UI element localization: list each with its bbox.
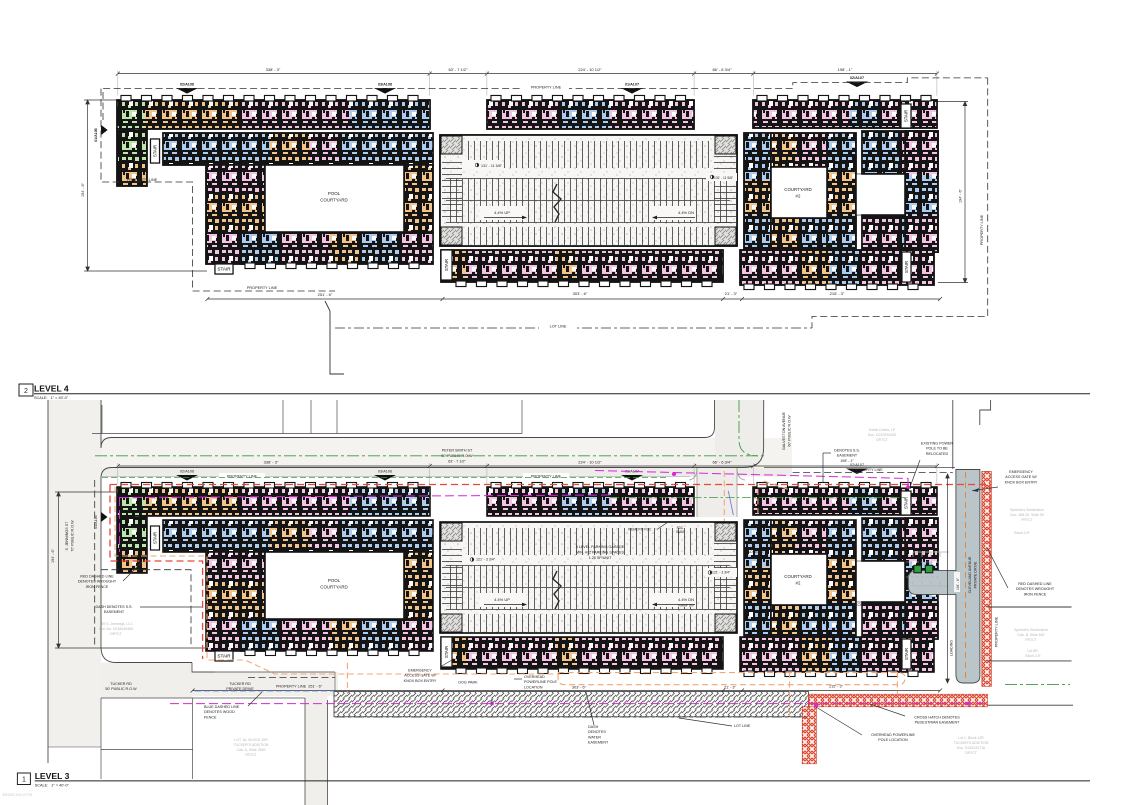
svg-text:Doc. D216131716: Doc. D216131716 bbox=[957, 746, 985, 750]
svg-text:TUCKER'S ADDITION: TUCKER'S ADDITION bbox=[234, 743, 269, 747]
svg-text:DRTCT: DRTCT bbox=[876, 438, 889, 442]
svg-text:PROPERTY LINE: PROPERTY LINE bbox=[980, 214, 984, 245]
svg-text:POWERLINE POLE: POWERLINE POLE bbox=[524, 680, 558, 684]
svg-text:121' - 3 3/4": 121' - 3 3/4" bbox=[476, 558, 496, 562]
svg-text:S. JENNINGS ST: S. JENNINGS ST bbox=[65, 521, 69, 551]
svg-text:ACCESS: ACCESS bbox=[852, 603, 868, 607]
svg-text:EMERGENCY: EMERGENCY bbox=[1009, 470, 1033, 474]
svg-text:SIAM: SIAM bbox=[676, 530, 684, 534]
svg-text:DENOTES S.S.: DENOTES S.S. bbox=[834, 449, 860, 453]
svg-text:EASEMENT: EASEMENT bbox=[588, 741, 609, 745]
svg-text:Cab. A, Slide 2549: Cab. A, Slide 2549 bbox=[237, 748, 266, 752]
svg-text:66' - 6 3/4": 66' - 6 3/4" bbox=[712, 67, 732, 72]
svg-text:SCALE: 1" = 40'-0": SCALE: 1" = 40'-0" bbox=[34, 396, 69, 400]
svg-text:131' - 11 5/8": 131' - 11 5/8" bbox=[714, 176, 734, 180]
svg-text:63' - 7 1/2": 63' - 7 1/2" bbox=[448, 459, 466, 463]
svg-text:ACCESS: ACCESS bbox=[747, 550, 763, 554]
svg-text:194' - 6": 194' - 6" bbox=[81, 182, 85, 197]
svg-text:PROPERTY LINE 251' - 6": PROPERTY LINE 251' - 6" bbox=[276, 685, 323, 689]
svg-text:Lot 8R,: Lot 8R, bbox=[1027, 649, 1038, 653]
svg-text:EASEMENT: EASEMENT bbox=[104, 610, 125, 614]
svg-text:224' - 10 1/2": 224' - 10 1/2" bbox=[578, 460, 602, 465]
svg-text:WATER: WATER bbox=[588, 735, 601, 739]
svg-text:Block 2-R: Block 2-R bbox=[1014, 531, 1030, 535]
svg-text:GALVESTON AVENUE: GALVESTON AVENUE bbox=[782, 412, 786, 450]
svg-text:BLUE DASHED LINE: BLUE DASHED LINE bbox=[204, 705, 240, 709]
svg-text:2: 2 bbox=[24, 388, 28, 395]
svg-text:MIN. 472 PARKING SPACES: MIN. 472 PARKING SPACES bbox=[576, 551, 625, 555]
svg-text:IRON FENCE: IRON FENCE bbox=[86, 585, 109, 589]
svg-text:DRTCT: DRTCT bbox=[965, 751, 978, 755]
svg-text:121' - 3 3/4": 121' - 3 3/4" bbox=[712, 571, 731, 575]
svg-text:PRTCT: PRTCT bbox=[1025, 638, 1037, 642]
svg-text:194' - 6": 194' - 6" bbox=[959, 188, 963, 203]
svg-text:DENOTES WROUGHT: DENOTES WROUGHT bbox=[78, 580, 117, 584]
svg-text:CLEVELAND AVENUE: CLEVELAND AVENUE bbox=[968, 556, 972, 593]
svg-text:215' - 3": 215' - 3" bbox=[830, 291, 845, 296]
svg-text:4 LEVEL PARKING GARAGE: 4 LEVEL PARKING GARAGE bbox=[576, 545, 625, 549]
svg-text:1.25 SP/UNIT: 1.25 SP/UNIT bbox=[589, 556, 612, 560]
svg-text:Sprinkle's Subdivision: Sprinkle's Subdivision bbox=[1014, 628, 1048, 632]
svg-text:EXISTING POWER: EXISTING POWER bbox=[921, 442, 954, 446]
svg-text:Doc. D222292400: Doc. D222292400 bbox=[868, 433, 896, 437]
svg-text:338' - 3": 338' - 3" bbox=[264, 460, 279, 465]
svg-text:194' - 6": 194' - 6" bbox=[956, 577, 960, 590]
svg-text:SoMa Casita, LP: SoMa Casita, LP bbox=[869, 428, 896, 432]
svg-text:PETER SMITH ST: PETER SMITH ST bbox=[442, 449, 473, 453]
svg-text:KNOX BOX ENTRY: KNOX BOX ENTRY bbox=[404, 679, 437, 683]
svg-text:70' PUBLIC R.O.W: 70' PUBLIC R.O.W bbox=[71, 520, 75, 552]
svg-text:RED DASHED LINE: RED DASHED LINE bbox=[80, 575, 114, 579]
svg-text:DENOTES WOOD: DENOTES WOOD bbox=[204, 710, 235, 714]
svg-text:303' - 6": 303' - 6" bbox=[572, 686, 587, 690]
svg-text:RELOCATED: RELOCATED bbox=[926, 452, 949, 456]
svg-text:EMERGENCY: EMERGENCY bbox=[408, 669, 432, 673]
svg-text:RED DASHED LINE: RED DASHED LINE bbox=[1018, 582, 1052, 586]
svg-text:DOG PARK: DOG PARK bbox=[458, 681, 478, 685]
svg-text:IRON FENCE: IRON FENCE bbox=[1024, 592, 1047, 596]
svg-text:21' - 3": 21' - 3" bbox=[725, 291, 738, 296]
svg-text:Block 2-R: Block 2-R bbox=[1025, 654, 1041, 658]
svg-text:224' - 10 1/2": 224' - 10 1/2" bbox=[578, 67, 602, 72]
svg-text:50' PUBLIC R.O.W: 50' PUBLIC R.O.W bbox=[105, 687, 137, 691]
svg-text:POLE LOCATION: POLE LOCATION bbox=[878, 738, 908, 742]
svg-text:LOADING: LOADING bbox=[950, 640, 954, 656]
svg-text:LOCATION: LOCATION bbox=[524, 685, 543, 689]
svg-text:TUCKER'S ADDITION: TUCKER'S ADDITION bbox=[954, 741, 989, 745]
svg-text:PEDESTRIAN EASEMENT: PEDESTRIAN EASEMENT bbox=[915, 721, 961, 725]
svg-text:PROPERTY LINE: PROPERTY LINE bbox=[127, 178, 158, 182]
svg-text:Sprinkle's Subdivision: Sprinkle's Subdivision bbox=[1010, 508, 1044, 512]
svg-text:ACCESS GATE W/: ACCESS GATE W/ bbox=[1005, 475, 1037, 479]
svg-text:Inst. No. D216045489: Inst. No. D216045489 bbox=[99, 627, 133, 631]
svg-text:KNOX BOX ENTRY: KNOX BOX ENTRY bbox=[1005, 480, 1038, 484]
svg-text:DENOTES WROUGHT: DENOTES WROUGHT bbox=[1016, 587, 1055, 591]
svg-text:194' - 6": 194' - 6" bbox=[51, 548, 55, 563]
svg-text:SCALE: 1" = 40'-0": SCALE: 1" = 40'-0" bbox=[35, 783, 70, 787]
svg-text:303' - 6": 303' - 6" bbox=[573, 291, 588, 296]
svg-text:TUCKER RD: TUCKER RD bbox=[110, 682, 132, 686]
svg-text:198' - 1": 198' - 1" bbox=[840, 459, 854, 463]
svg-text:LOT LINE: LOT LINE bbox=[734, 724, 751, 728]
svg-text:FENCE: FENCE bbox=[204, 715, 217, 719]
svg-text:LEVEL 4: LEVEL 4 bbox=[34, 384, 69, 394]
svg-text:LEVEL 3: LEVEL 3 bbox=[35, 771, 70, 781]
svg-text:PROPERTY LINE: PROPERTY LINE bbox=[853, 468, 883, 472]
svg-text:1: 1 bbox=[22, 777, 26, 784]
svg-text:Cab. B, Slide 852: Cab. B, Slide 852 bbox=[1017, 633, 1044, 637]
svg-text:338' - 3": 338' - 3" bbox=[266, 67, 281, 72]
svg-text:EASEMENT: EASEMENT bbox=[837, 454, 858, 458]
svg-text:PROPERTY LINE: PROPERTY LINE bbox=[247, 286, 278, 290]
svg-text:OVERHEAD: OVERHEAD bbox=[524, 675, 545, 679]
svg-text:DENOTES: DENOTES bbox=[588, 730, 606, 734]
svg-text:60' PUBLIC R.O.W: 60' PUBLIC R.O.W bbox=[788, 415, 792, 447]
svg-text:OVERHEAD POWERLINE: OVERHEAD POWERLINE bbox=[871, 733, 915, 737]
svg-text:198' - 1": 198' - 1" bbox=[838, 67, 853, 72]
svg-text:66' - 6 3/4": 66' - 6 3/4" bbox=[712, 460, 732, 465]
svg-text:RAMP DN: RAMP DN bbox=[678, 604, 694, 608]
svg-text:PRTCT: PRTCT bbox=[1021, 518, 1033, 522]
svg-text:TUCKER RD: TUCKER RD bbox=[229, 682, 251, 686]
svg-text:DRTCT: DRTCT bbox=[110, 632, 123, 636]
svg-text:131' - 11 5/8": 131' - 11 5/8" bbox=[481, 164, 503, 168]
svg-text:8/9/2021 4:51:47 PM: 8/9/2021 4:51:47 PM bbox=[3, 793, 33, 797]
svg-text:POLE TO BE: POLE TO BE bbox=[926, 447, 948, 451]
svg-text:PROPERTY LINE: PROPERTY LINE bbox=[995, 616, 999, 647]
svg-text:CROSS HATCH DENOTES: CROSS HATCH DENOTES bbox=[914, 716, 960, 720]
svg-text:REMOTE FDC: REMOTE FDC bbox=[628, 528, 652, 532]
svg-text:PROPERTY LINE: PROPERTY LINE bbox=[531, 86, 562, 90]
svg-text:LOT 1A, BLOCK 10R: LOT 1A, BLOCK 10R bbox=[234, 738, 268, 742]
svg-text:DASH: DASH bbox=[588, 725, 599, 729]
svg-text:Lot 1, Block 12R: Lot 1, Block 12R bbox=[958, 736, 984, 740]
svg-text:63' - 7 1/2": 63' - 7 1/2" bbox=[448, 67, 468, 72]
svg-text:21' - 3": 21' - 3" bbox=[724, 686, 736, 690]
svg-text:ACCESS GATE W/: ACCESS GATE W/ bbox=[404, 674, 436, 678]
svg-text:Doc. 388-92, Slide 50: Doc. 388-92, Slide 50 bbox=[1010, 513, 1044, 517]
svg-text:251' - 6": 251' - 6" bbox=[318, 292, 333, 297]
svg-text:DASH DENOTES S.S.: DASH DENOTES S.S. bbox=[95, 605, 132, 609]
svg-text:459 S. Jennings, LLC: 459 S. Jennings, LLC bbox=[99, 622, 133, 626]
svg-text:PRIVATE DRIVE: PRIVATE DRIVE bbox=[974, 561, 978, 588]
svg-text:PRTCT: PRTCT bbox=[245, 753, 257, 757]
svg-text:LOT LINE: LOT LINE bbox=[550, 325, 567, 329]
